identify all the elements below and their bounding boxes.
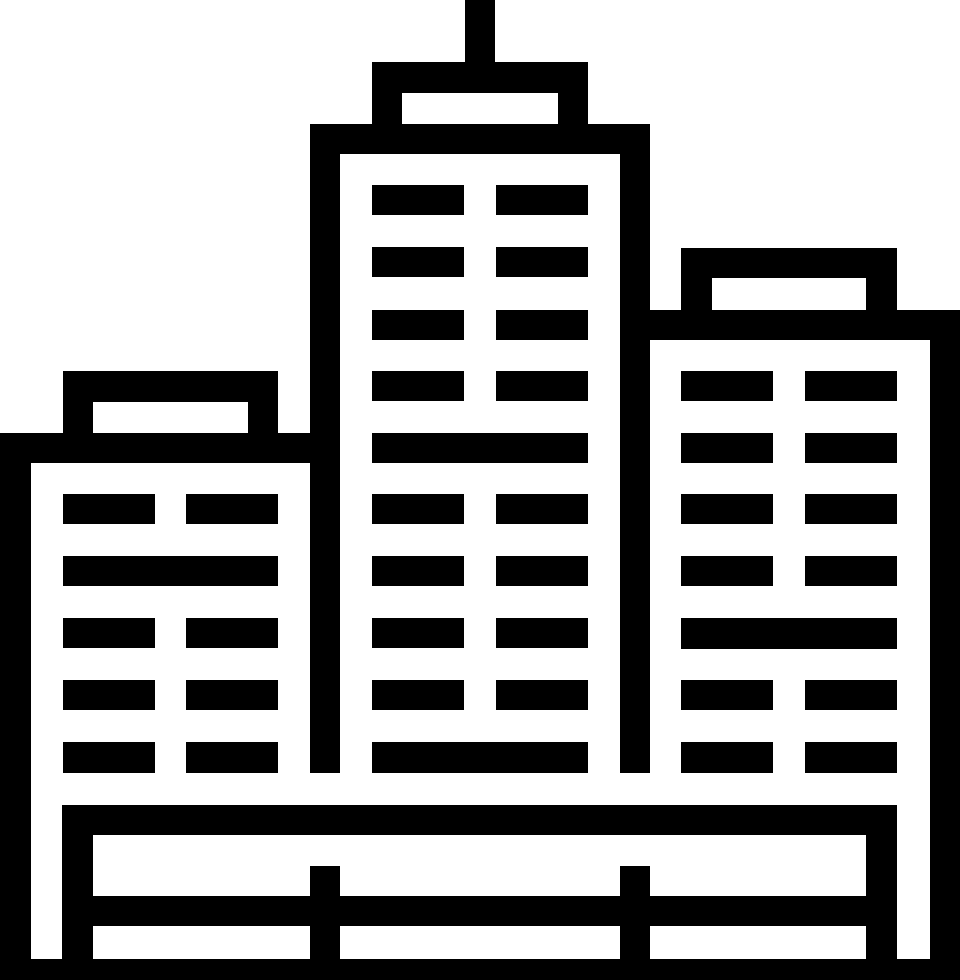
left-building [0,371,310,959]
right-building [650,248,960,980]
city-buildings-icon [0,0,960,980]
center-building [310,62,650,773]
icon-canvas [0,0,960,980]
base-fence [0,805,960,980]
